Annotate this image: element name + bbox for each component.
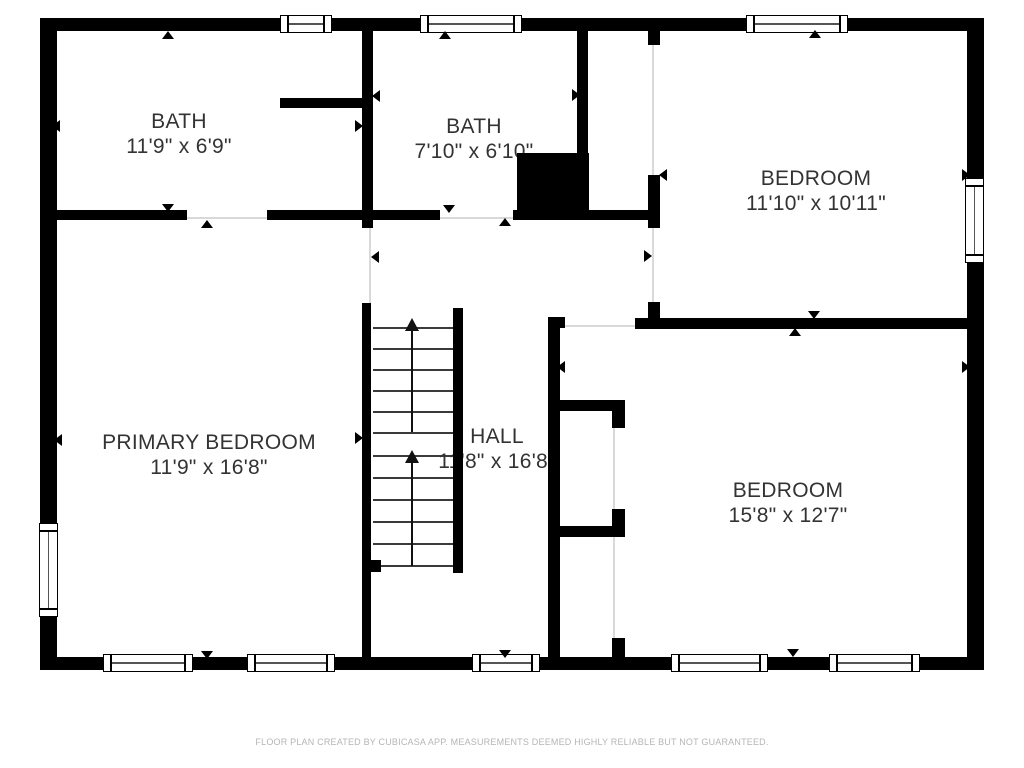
room-name: BEDROOM bbox=[746, 166, 886, 191]
door-direction-arrow-down bbox=[443, 205, 455, 213]
door-direction-arrow-down bbox=[162, 204, 174, 212]
wall-segment bbox=[635, 318, 984, 329]
wall-segment bbox=[267, 210, 373, 220]
window-icon bbox=[965, 178, 984, 263]
room-label-bedroom-2: BEDROOM 15'8" x 12'7" bbox=[728, 478, 847, 528]
floor-plan-canvas: BATH 11'9" x 6'9" BATH 7'10" x 6'10" BED… bbox=[0, 0, 1024, 768]
room-dims: 11'9" x 16'8" bbox=[102, 455, 316, 480]
window-frame-bar bbox=[966, 254, 983, 256]
wall-segment bbox=[517, 153, 589, 215]
door-opening bbox=[613, 428, 615, 509]
room-label-bath-1: BATH 11'9" x 6'9" bbox=[126, 109, 232, 159]
stair-direction-line bbox=[411, 330, 413, 432]
wall-segment bbox=[612, 638, 625, 657]
door-direction-arrow-right bbox=[355, 120, 363, 132]
room-name: PRIMARY BEDROOM bbox=[102, 430, 316, 455]
window-glass-line bbox=[112, 662, 184, 664]
door-opening bbox=[652, 228, 654, 302]
window-frame-bar bbox=[839, 16, 841, 32]
door-direction-arrow-up bbox=[439, 31, 451, 39]
door-direction-arrow-up bbox=[201, 220, 213, 228]
window-icon bbox=[829, 654, 920, 672]
window-glass-line bbox=[680, 662, 759, 664]
door-direction-arrow-down bbox=[499, 650, 511, 658]
wall-segment bbox=[548, 317, 565, 328]
door-direction-arrow-up bbox=[499, 218, 511, 226]
room-name: BATH bbox=[126, 109, 232, 134]
wall-segment bbox=[371, 560, 381, 572]
wall-segment bbox=[648, 31, 660, 45]
door-opening bbox=[369, 228, 371, 303]
wall-segment bbox=[612, 400, 625, 428]
door-direction-arrow-right bbox=[572, 89, 580, 101]
stair-tread bbox=[373, 565, 453, 567]
door-direction-arrow-down bbox=[808, 311, 820, 319]
wall-segment bbox=[373, 210, 440, 220]
window-frame-bar bbox=[513, 16, 515, 32]
window-frame-bar bbox=[911, 655, 913, 671]
door-opening bbox=[613, 537, 615, 638]
stair-up-arrow-icon bbox=[405, 450, 419, 463]
stair-up-arrow-icon bbox=[405, 318, 419, 331]
window-icon bbox=[103, 654, 193, 672]
stair-tread bbox=[373, 499, 453, 501]
stair-tread bbox=[373, 543, 453, 545]
stair-tread bbox=[373, 369, 453, 371]
room-label-primary-bedroom: PRIMARY BEDROOM 11'9" x 16'8" bbox=[102, 430, 316, 480]
window-icon bbox=[746, 15, 848, 33]
window-glass-line bbox=[429, 23, 513, 25]
wall-segment bbox=[453, 308, 463, 573]
room-dims: 11'10" x 10'11" bbox=[746, 191, 886, 216]
window-frame-bar bbox=[326, 655, 328, 671]
door-direction-arrow-left bbox=[54, 434, 62, 446]
room-name: BATH bbox=[414, 114, 533, 139]
window-glass-line bbox=[48, 532, 50, 608]
door-direction-arrow-left bbox=[372, 90, 380, 102]
wall-segment bbox=[362, 303, 371, 657]
window-glass-line bbox=[838, 662, 911, 664]
window-glass-line bbox=[289, 23, 323, 25]
room-dims: 7'10" x 6'10" bbox=[414, 139, 533, 164]
stair-tread bbox=[373, 477, 453, 479]
stair-tread bbox=[373, 521, 453, 523]
door-direction-arrow-left bbox=[371, 251, 379, 263]
door-direction-arrow-right bbox=[962, 169, 970, 181]
window-frame-bar bbox=[531, 655, 533, 671]
window-glass-line bbox=[755, 23, 839, 25]
door-direction-arrow-right bbox=[644, 250, 652, 262]
door-direction-arrow-up bbox=[789, 328, 801, 336]
door-direction-arrow-left bbox=[659, 169, 667, 181]
door-opening bbox=[187, 217, 267, 219]
wall-segment bbox=[362, 31, 373, 228]
room-name: BEDROOM bbox=[728, 478, 847, 503]
window-glass-line bbox=[974, 187, 976, 254]
room-label-bath-2: BATH 7'10" x 6'10" bbox=[414, 114, 533, 164]
window-glass-line bbox=[481, 662, 531, 664]
window-icon bbox=[247, 654, 335, 672]
door-opening bbox=[565, 325, 635, 327]
window-icon bbox=[280, 15, 332, 33]
door-direction-arrow-down bbox=[201, 651, 213, 659]
window-glass-line bbox=[256, 662, 326, 664]
door-direction-arrow-up bbox=[809, 30, 821, 38]
window-icon bbox=[420, 15, 522, 33]
room-dims: 15'8" x 12'7" bbox=[728, 503, 847, 528]
stair-tread bbox=[373, 390, 453, 392]
stair-tread bbox=[373, 411, 453, 413]
room-dims: 11'9" x 6'9" bbox=[126, 134, 232, 159]
window-frame-bar bbox=[40, 608, 57, 610]
window-frame-bar bbox=[323, 16, 325, 32]
wall-segment bbox=[280, 98, 362, 108]
door-direction-arrow-left bbox=[52, 120, 60, 132]
wall-segment bbox=[648, 175, 660, 228]
footer-disclaimer: FLOOR PLAN CREATED BY CUBICASA APP. MEAS… bbox=[255, 737, 768, 747]
window-frame-bar bbox=[759, 655, 761, 671]
door-direction-arrow-left bbox=[557, 361, 565, 373]
door-opening bbox=[652, 45, 654, 175]
window-frame-bar bbox=[184, 655, 186, 671]
wall-segment bbox=[648, 302, 660, 318]
stair-direction-line bbox=[411, 462, 413, 566]
door-direction-arrow-up bbox=[162, 31, 174, 39]
wall-segment bbox=[612, 509, 625, 537]
window-icon bbox=[39, 523, 58, 617]
stair-tread bbox=[373, 348, 453, 350]
door-direction-arrow-right bbox=[355, 432, 363, 444]
door-direction-arrow-right bbox=[962, 361, 970, 373]
room-label-bedroom-1: BEDROOM 11'10" x 10'11" bbox=[746, 166, 886, 216]
wall-segment bbox=[967, 18, 984, 670]
window-icon bbox=[671, 654, 768, 672]
door-direction-arrow-down bbox=[787, 649, 799, 657]
